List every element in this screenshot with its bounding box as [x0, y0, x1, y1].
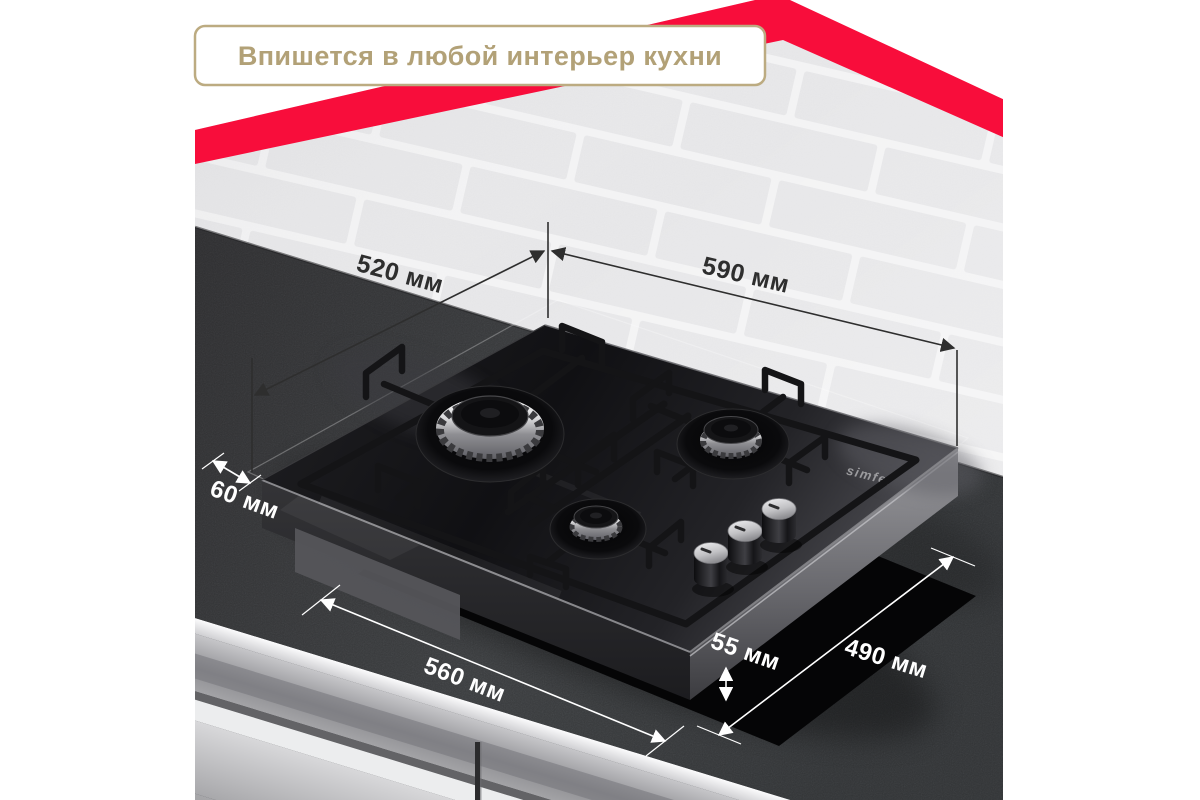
headline-banner: Впишется в любой интерьер кухни: [195, 26, 765, 85]
burner-front: [550, 499, 646, 559]
scene: simfer: [0, 0, 1200, 800]
headline-banner-text: Впишется в любой интерьер кухни: [238, 41, 722, 71]
product-dimensions-infographic: simfer: [0, 0, 1200, 800]
burner-large: [416, 386, 564, 482]
burner-right: [677, 409, 789, 479]
cabinet-handle-bar: [475, 742, 480, 800]
knob-3: [760, 499, 802, 554]
photo-area: simfer: [86, 0, 1018, 800]
